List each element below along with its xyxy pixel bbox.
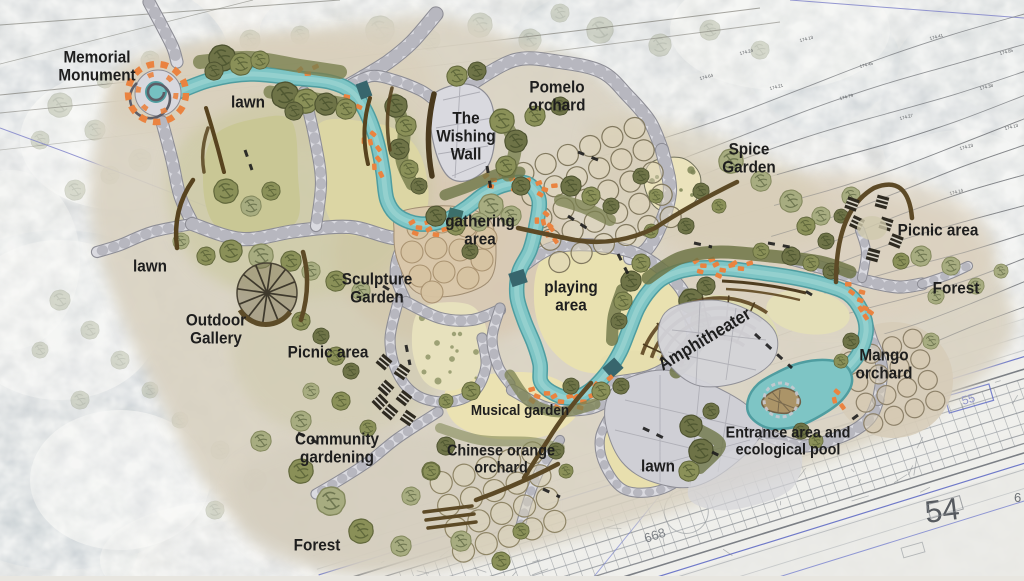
svg-text:Pomelo: Pomelo [529,78,584,97]
svg-text:Gallery: Gallery [190,329,242,348]
svg-text:The: The [452,109,479,128]
svg-text:orchard: orchard [529,96,586,115]
svg-text:Picnic area: Picnic area [288,343,370,362]
svg-text:lawn: lawn [641,457,675,476]
svg-text:Forest: Forest [933,279,980,298]
svg-text:Outdoor: Outdoor [186,311,247,330]
svg-text:Forest: Forest [294,536,341,555]
svg-text:Sculpture: Sculpture [342,270,413,289]
svg-text:lawn: lawn [231,93,265,112]
svg-text:Memorial: Memorial [63,48,130,67]
svg-text:playing: playing [544,278,598,297]
svg-text:lawn: lawn [133,257,167,276]
svg-text:Musical garden: Musical garden [471,402,569,419]
svg-text:gathering: gathering [445,212,515,231]
svg-text:ecological pool: ecological pool [736,441,841,459]
svg-text:orchard: orchard [856,364,913,383]
svg-text:area: area [464,230,496,249]
svg-text:Wishing: Wishing [436,127,495,146]
svg-text:Chinese orange: Chinese orange [447,442,555,460]
svg-text:Entrance area and: Entrance area and [726,424,851,442]
svg-text:Garden: Garden [350,288,404,307]
svg-text:6: 6 [1014,490,1021,505]
svg-text:Picnic area: Picnic area [898,221,980,240]
svg-text:orchard: orchard [474,459,528,477]
svg-text:gardening: gardening [300,448,374,467]
svg-text:Community: Community [295,430,379,449]
svg-text:Monument: Monument [58,66,136,85]
svg-text:Garden: Garden [722,158,776,177]
svg-text:Wall: Wall [451,145,482,164]
svg-text:area: area [555,296,587,315]
svg-text:Mango: Mango [859,346,908,365]
svg-text:Spice: Spice [729,140,770,159]
